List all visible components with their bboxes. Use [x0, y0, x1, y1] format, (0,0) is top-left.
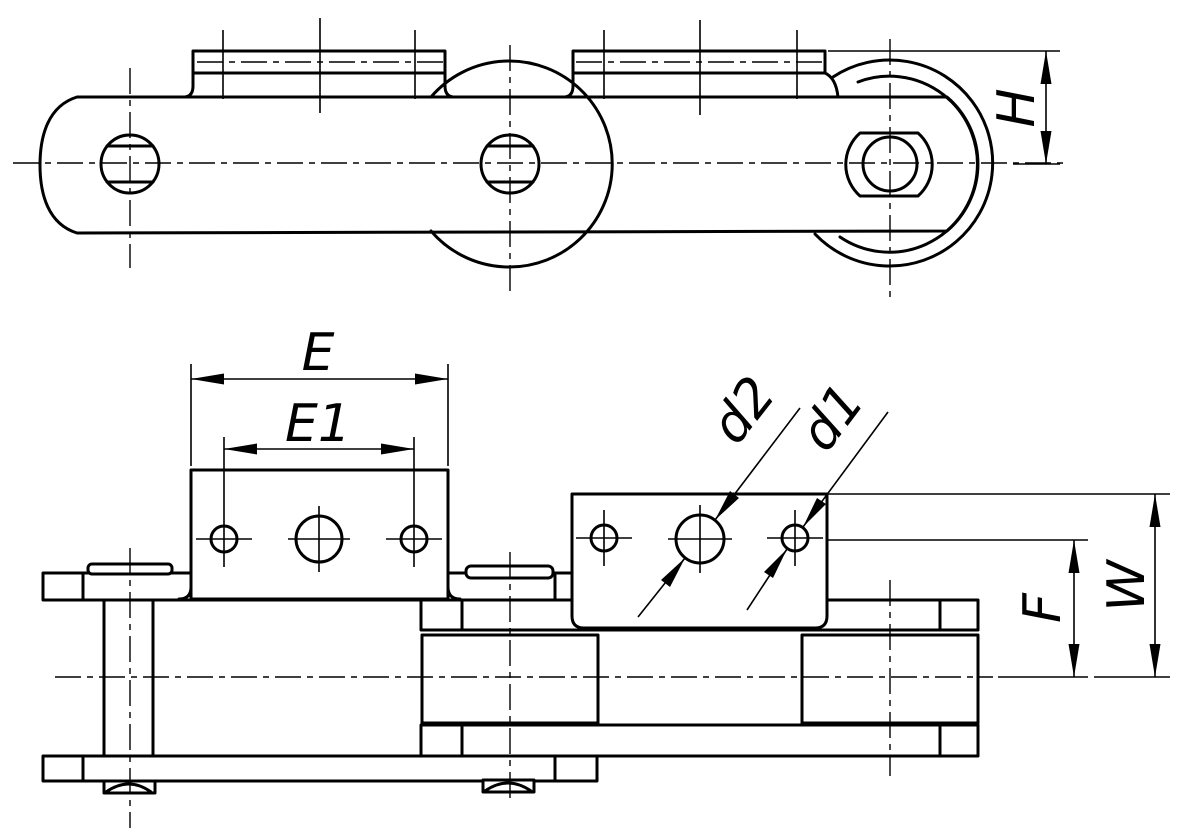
dimension-label-d1: d1 [789, 373, 877, 462]
arrowhead-right [415, 374, 448, 385]
arrowhead-up [1150, 494, 1161, 527]
arrowhead-left [224, 444, 257, 455]
engineering-drawing-page: H [0, 0, 1196, 837]
attachment-plate-right [572, 494, 827, 628]
arrowhead-left [191, 374, 224, 385]
side-elevation-view: H [13, 18, 1063, 302]
dimension-label-h: H [987, 88, 1047, 127]
arrowhead-right [381, 444, 414, 455]
dimension-label-e1: E1 [285, 394, 351, 454]
arrowhead-down [1069, 644, 1080, 677]
arrowhead-up [1041, 51, 1052, 84]
strip-bend-fillets [185, 73, 838, 97]
inner-plate-far [421, 725, 978, 756]
dimension-label-f: F [1013, 592, 1073, 623]
plan-view: E E1 d2 d1 F [43, 323, 1170, 828]
technical-drawing: H [0, 0, 1196, 837]
attachment-plate-left [179, 437, 460, 599]
dimension-E1: E1 [224, 394, 414, 455]
arrowhead-down [1150, 644, 1161, 677]
dimension-label-e: E [302, 323, 335, 383]
outer-plate-far [43, 756, 597, 781]
hex-pin-end [846, 133, 932, 196]
arrowhead-up [1069, 540, 1080, 573]
arrowhead-down [1041, 131, 1052, 164]
dimension-label-w: W [1097, 558, 1157, 612]
